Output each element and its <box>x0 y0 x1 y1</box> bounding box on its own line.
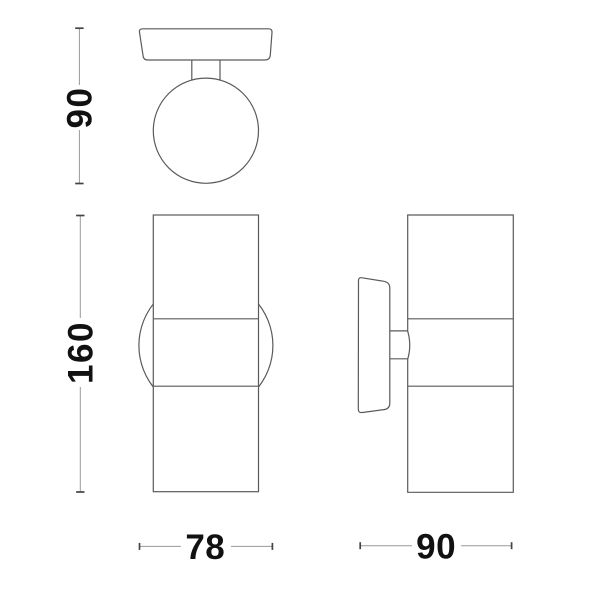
svg-text:90: 90 <box>61 87 100 129</box>
svg-text:78: 78 <box>185 528 225 567</box>
svg-text:90: 90 <box>416 528 456 567</box>
svg-text:160: 160 <box>62 321 101 384</box>
